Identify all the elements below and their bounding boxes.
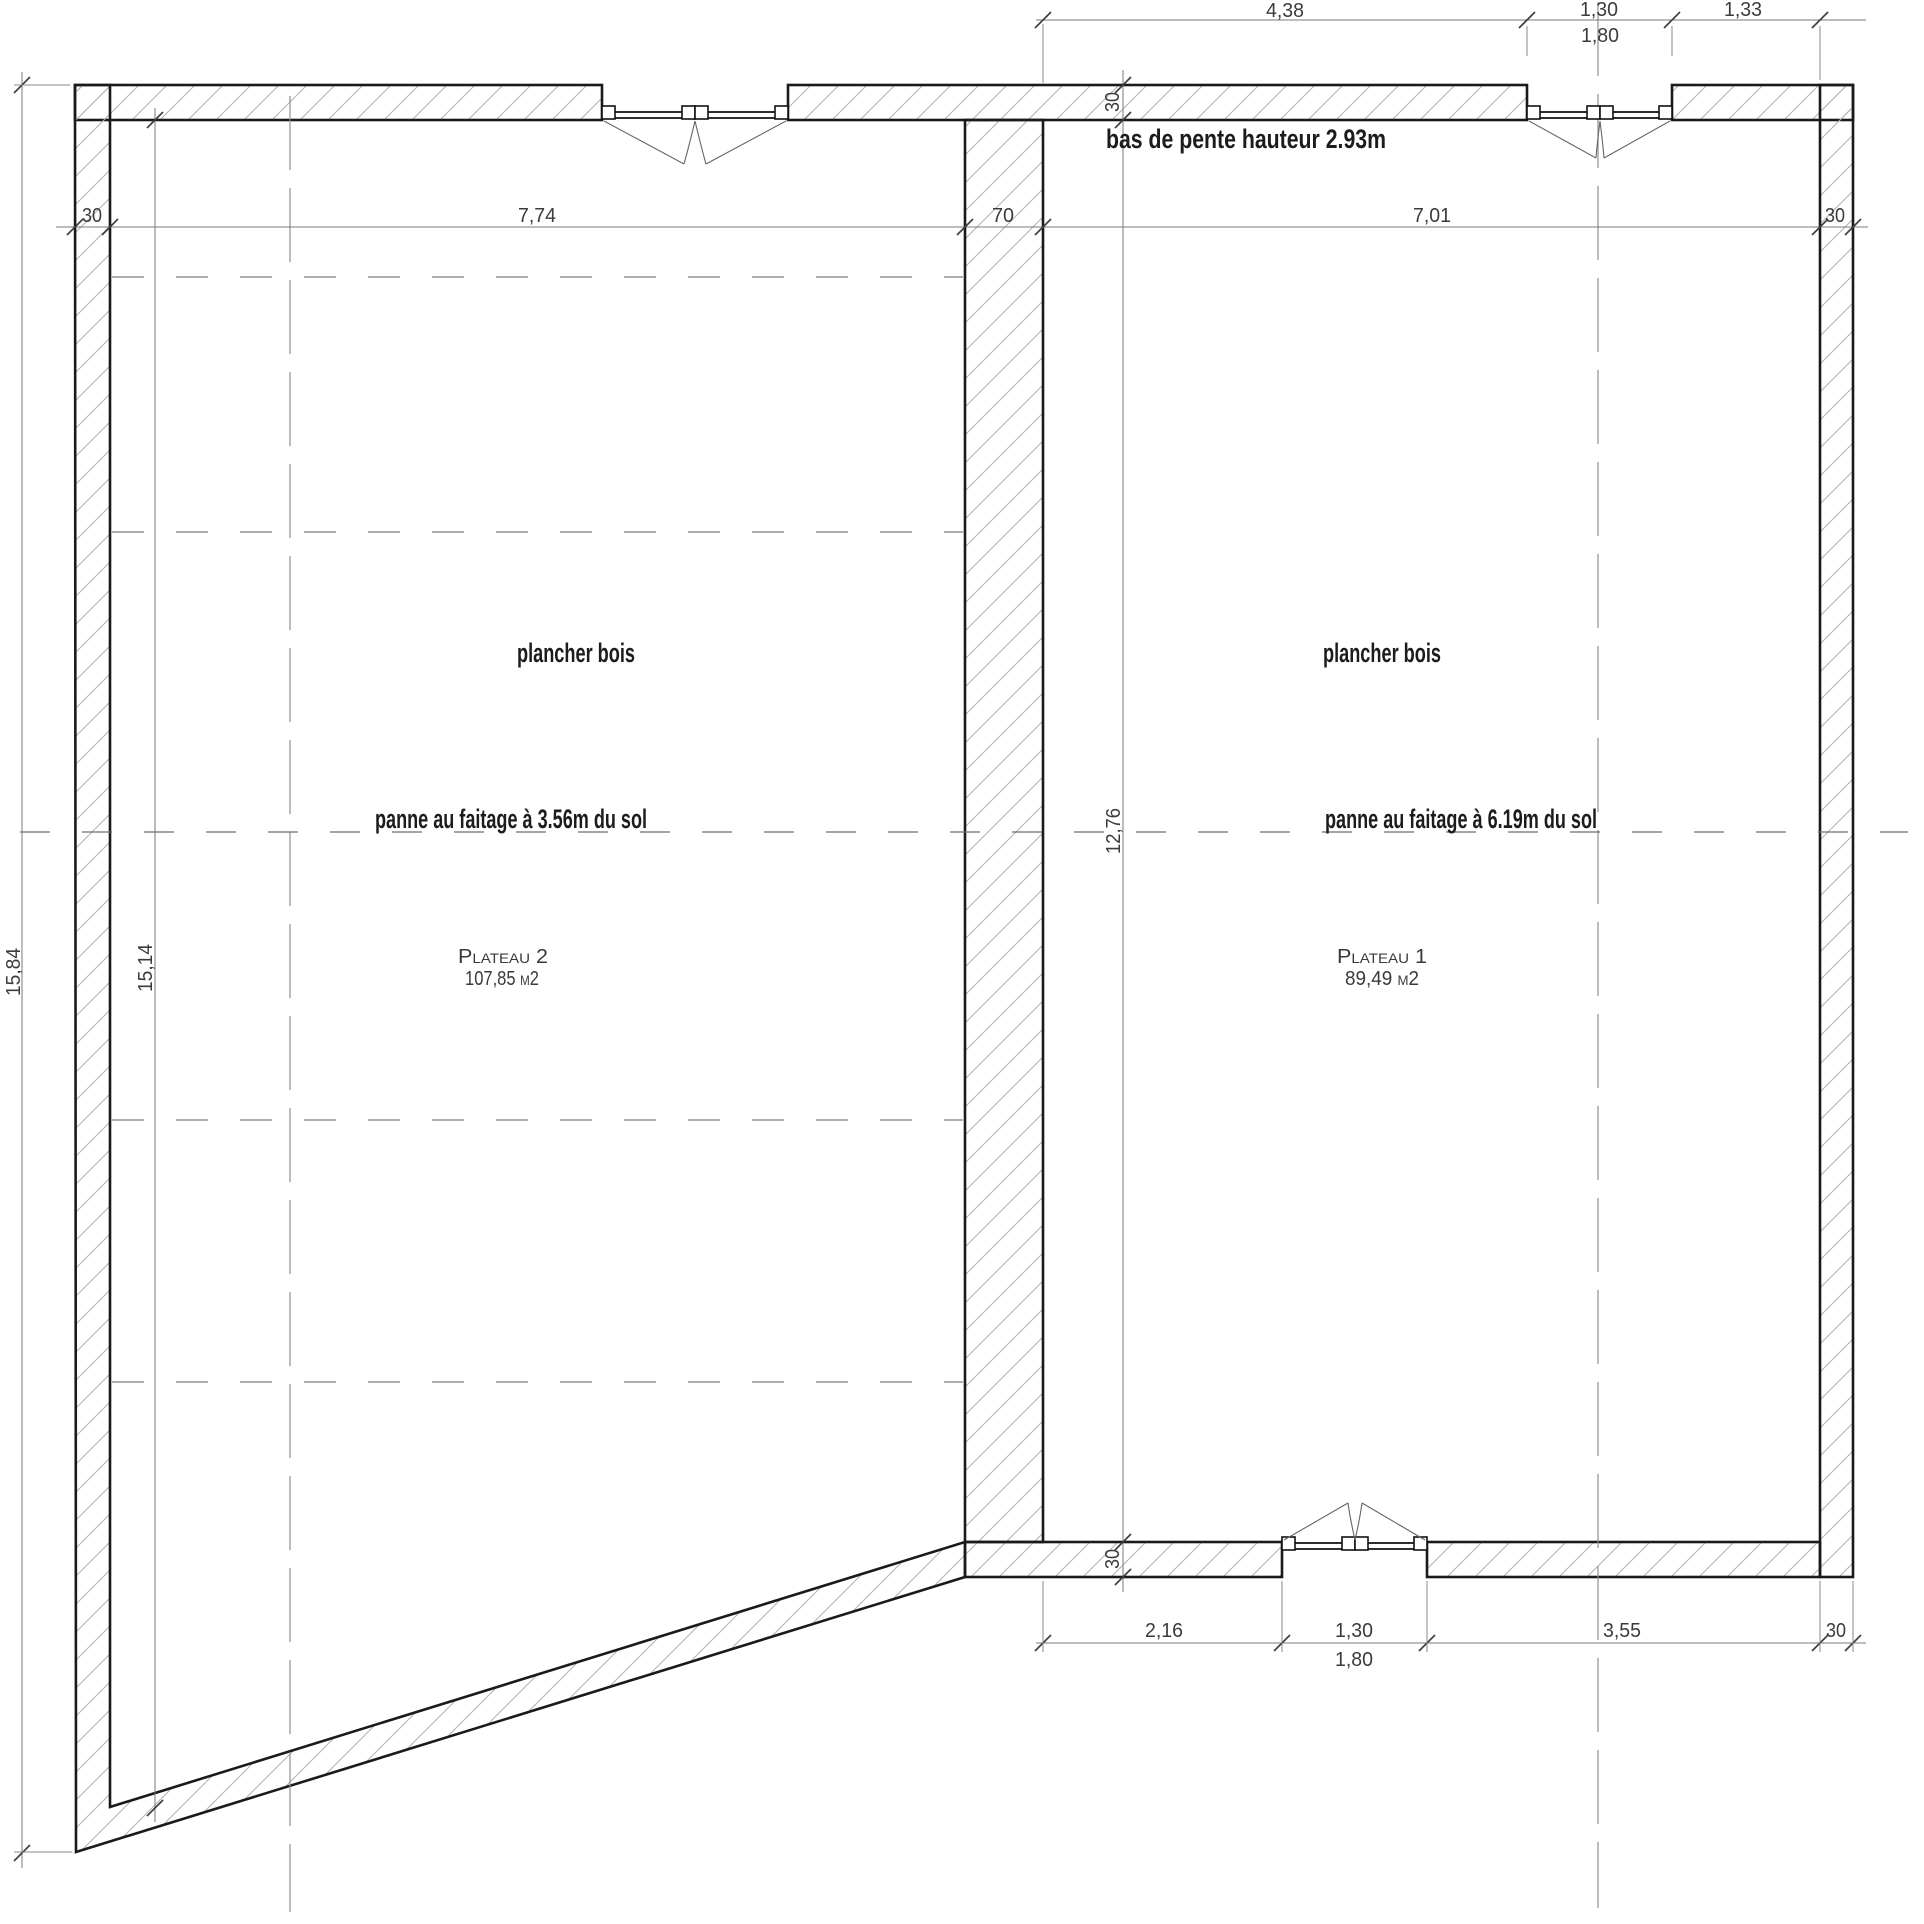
dim-label-15-14: 15,14 [135,944,157,992]
dim-label-4-38: 4,38 [1266,0,1304,22]
dim-label-70: 70 [992,205,1014,227]
window-swing-arc [1355,1503,1362,1540]
dim-label-7-01: 7,01 [1413,205,1451,227]
window-swing-line [706,121,786,164]
slope-note-label: bas de pente hauteur 2.93m [1106,124,1386,154]
window-frame [1600,106,1613,119]
window-frame [682,106,695,119]
window-swing-line [1284,1503,1348,1540]
ridge-note-left: panne au faitage à 3.56m du sol [375,804,647,834]
dim-label-30-right: 30 [1825,205,1845,227]
dim-label-2-16: 2,16 [1145,1620,1183,1642]
dim-label-30-left: 30 [82,205,102,227]
room-name-plateau2: Plateau 2 [458,946,548,968]
floor-plan-page: 4,38 1,30 1,80 1,33 30 7,74 70 7,01 30 2… [0,0,1924,1924]
room-area-plateau1: 89,49 m2 [1345,968,1419,990]
window-swing-line [1529,121,1596,158]
dim-label-1-80-top: 1,80 [1581,25,1619,47]
wall-right [1820,85,1853,1577]
window-swing-line [1604,121,1670,158]
dim-label-30-wall-bottom: 30 [1102,1549,1124,1569]
window-frame [1587,106,1600,119]
wall-top-middle-segment [788,85,1527,120]
wall-bottom-right-segment [1427,1542,1820,1577]
window-swing-line [1362,1503,1425,1540]
walls [75,85,1853,1852]
window-swing-line [604,121,684,164]
labels: 4,38 1,30 1,80 1,33 30 7,74 70 7,01 30 2… [3,0,1846,1671]
window-frame [1414,1537,1427,1550]
window-swing-arc [695,121,706,164]
window-top-right [1527,106,1672,158]
dim-label-1-30-top: 1,30 [1580,0,1618,21]
wall-middle-separating [965,120,1043,1542]
dim-label-1-30-bottom: 1,30 [1335,1620,1373,1642]
window-frame [1527,106,1540,119]
window-frame [1659,106,1672,119]
dim-label-12-76: 12,76 [1103,808,1125,854]
window-bottom [1282,1503,1427,1550]
dim-label-1-33: 1,33 [1724,0,1762,21]
floor-label-right: plancher bois [1323,638,1441,668]
window-frame [602,106,615,119]
window-swing-arc [684,121,695,164]
floor-label-left: plancher bois [517,638,635,668]
dimension-lines [14,12,1868,1868]
dim-label-1-80-bottom: 1,80 [1335,1649,1373,1671]
window-top-left [602,106,788,164]
window-frame [775,106,788,119]
dim-label-30-bottom: 30 [1826,1620,1846,1642]
wall-top-left-segment [75,85,602,120]
window-swing-arc [1600,121,1604,158]
dim-label-3-55: 3,55 [1603,1620,1641,1642]
window-frame [695,106,708,119]
dim-label-15-84: 15,84 [3,948,25,996]
room-name-plateau1: Plateau 1 [1337,946,1427,968]
window-frame [1342,1537,1355,1550]
window-frame [1282,1537,1295,1550]
floor-plan-svg: 4,38 1,30 1,80 1,33 30 7,74 70 7,01 30 2… [0,0,1924,1924]
room-area-plateau2: 107,85 m2 [465,968,539,990]
ridge-note-right: panne au faitage à 6.19m du sol [1325,804,1597,834]
dim-label-7-74: 7,74 [518,205,556,227]
window-frame [1355,1537,1368,1550]
window-swing-arc [1348,1503,1355,1540]
dim-label-30-wall-top: 30 [1102,92,1124,112]
